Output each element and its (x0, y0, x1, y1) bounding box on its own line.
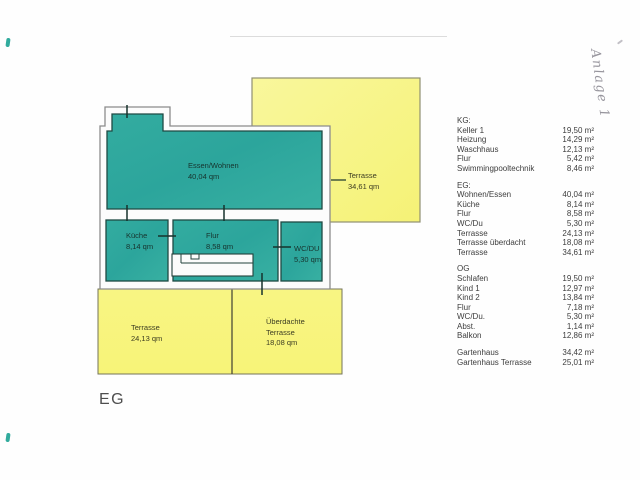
room-area: 8,58 qm (206, 242, 233, 253)
legend-item: Wohnen/Essen40,04 m² (457, 190, 594, 200)
legend-item-area: 34,42 m² (562, 348, 594, 358)
legend-item: Küche8,14 m² (457, 200, 594, 210)
terrace-name: Terrasse (131, 323, 162, 334)
legend-item-name: Gartenhaus (457, 348, 499, 358)
legend-item-area: 1,14 m² (567, 322, 594, 332)
legend-item-area: 5,30 m² (567, 312, 594, 322)
legend-item-area: 13,84 m² (562, 293, 594, 303)
legend-section-og: OG Schlafen19,50 m² Kind 112,97 m² Kind … (457, 264, 594, 341)
legend-item: Schlafen19,50 m² (457, 274, 594, 284)
legend-item-name: Waschhaus (457, 145, 499, 155)
legend-item-area: 18,08 m² (562, 238, 594, 248)
legend-item-area: 8,58 m² (567, 209, 594, 219)
legend-item-name: WC/Du (457, 219, 483, 229)
legend-item-area: 24,13 m² (562, 229, 594, 239)
legend-item: Waschhaus12,13 m² (457, 145, 594, 155)
legend-item: Terrasse34,61 m² (457, 248, 594, 258)
terrace-name: Terrasse (348, 171, 379, 182)
legend-item-area: 5,42 m² (567, 154, 594, 164)
terrace-area: 24,13 qm (131, 334, 162, 345)
legend-item-area: 14,29 m² (562, 135, 594, 145)
room-name: Essen/Wohnen (188, 161, 239, 172)
scanned-floorplan-page: Essen/Wohnen 40,04 qm Küche 8,14 qm Flur… (0, 0, 640, 480)
legend-item-area: 5,30 m² (567, 219, 594, 229)
legend-item-area: 12,86 m² (562, 331, 594, 341)
legend-item-name: Keller 1 (457, 126, 484, 136)
legend-item: Kind 213,84 m² (457, 293, 594, 303)
legend-item: Gartenhaus Terrasse25,01 m² (457, 358, 594, 368)
stair-nosing-box (191, 254, 199, 259)
legend-item-area: 8,14 m² (567, 200, 594, 210)
legend-item-name: Küche (457, 200, 480, 210)
area-legend: KG: Keller 119,50 m² Heizung14,29 m² Was… (457, 116, 594, 374)
room-name: Küche (126, 231, 153, 242)
legend-item-name: Kind 1 (457, 284, 480, 294)
legend-item-name: Swimmingpooltechnik (457, 164, 534, 174)
legend-item-area: 8,46 m² (567, 164, 594, 174)
legend-item-area: 12,13 m² (562, 145, 594, 155)
legend-item-area: 12,97 m² (562, 284, 594, 294)
legend-item: Keller 119,50 m² (457, 126, 594, 136)
label-terrace-upper: Terrasse 34,61 qm (348, 171, 379, 192)
label-room-kitchen: Küche 8,14 qm (126, 231, 153, 252)
legend-item: Flur5,42 m² (457, 154, 594, 164)
legend-section-gartenhaus: Gartenhaus34,42 m² Gartenhaus Terrasse25… (457, 348, 594, 367)
legend-item: Gartenhaus34,42 m² (457, 348, 594, 358)
legend-item-area: 19,50 m² (562, 126, 594, 136)
legend-section-eg: EG: Wohnen/Essen40,04 m² Küche8,14 m² Fl… (457, 181, 594, 258)
terrace-area: 18,08 qm (266, 338, 305, 349)
legend-item: Kind 112,97 m² (457, 284, 594, 294)
terrace-area: 34,61 qm (348, 182, 379, 193)
legend-item: Terrasse24,13 m² (457, 229, 594, 239)
legend-item-area: 7,18 m² (567, 303, 594, 313)
legend-item: Swimmingpooltechnik8,46 m² (457, 164, 594, 174)
legend-item: WC/Du5,30 m² (457, 219, 594, 229)
legend-item-name: Heizung (457, 135, 486, 145)
label-room-hall: Flur 8,58 qm (206, 231, 233, 252)
label-room-wc: WC/DU 5,30 qm (294, 244, 321, 265)
legend-item-name: Terrasse (457, 248, 488, 258)
room-area: 8,14 qm (126, 242, 153, 253)
legend-item-name: Terrasse (457, 229, 488, 239)
room-name: WC/DU (294, 244, 321, 255)
floor-title: EG (99, 391, 125, 409)
legend-item-name: WC/Du. (457, 312, 485, 322)
legend-item-name: Flur (457, 154, 471, 164)
terrace-name-line1: Überdachte (266, 317, 305, 328)
staircase (172, 254, 253, 276)
legend-item-area: 40,04 m² (562, 190, 594, 200)
legend-item-name: Wohnen/Essen (457, 190, 511, 200)
legend-item: Balkon12,86 m² (457, 331, 594, 341)
legend-section-title: EG: (457, 181, 594, 191)
legend-item: Flur8,58 m² (457, 209, 594, 219)
room-name: Flur (206, 231, 233, 242)
legend-item-area: 34,61 m² (562, 248, 594, 258)
label-terrace-lower: Terrasse 24,13 qm (131, 323, 162, 344)
legend-item-name: Schlafen (457, 274, 488, 284)
terrace-name-line2: Terrasse (266, 328, 305, 339)
staircase-shape (172, 254, 253, 276)
legend-item-name: Kind 2 (457, 293, 480, 303)
legend-item-name: Balkon (457, 331, 481, 341)
legend-section-title: OG (457, 264, 594, 274)
legend-item: WC/Du.5,30 m² (457, 312, 594, 322)
legend-item-area: 25,01 m² (562, 358, 594, 368)
legend-item-name: Flur (457, 303, 471, 313)
label-room-living: Essen/Wohnen 40,04 qm (188, 161, 239, 182)
legend-section-title: KG: (457, 116, 594, 126)
legend-item: Abst.1,14 m² (457, 322, 594, 332)
legend-item: Terrasse überdacht18,08 m² (457, 238, 594, 248)
legend-item-name: Abst. (457, 322, 475, 332)
legend-item-name: Terrasse überdacht (457, 238, 525, 248)
legend-item-name: Gartenhaus Terrasse (457, 358, 532, 368)
legend-item-name: Flur (457, 209, 471, 219)
room-area: 40,04 qm (188, 172, 239, 183)
label-terrace-covered: Überdachte Terrasse 18,08 qm (266, 317, 305, 349)
room-area: 5,30 qm (294, 255, 321, 266)
legend-item: Flur7,18 m² (457, 303, 594, 313)
legend-item-area: 19,50 m² (562, 274, 594, 284)
legend-section-kg: KG: Keller 119,50 m² Heizung14,29 m² Was… (457, 116, 594, 174)
legend-item: Heizung14,29 m² (457, 135, 594, 145)
